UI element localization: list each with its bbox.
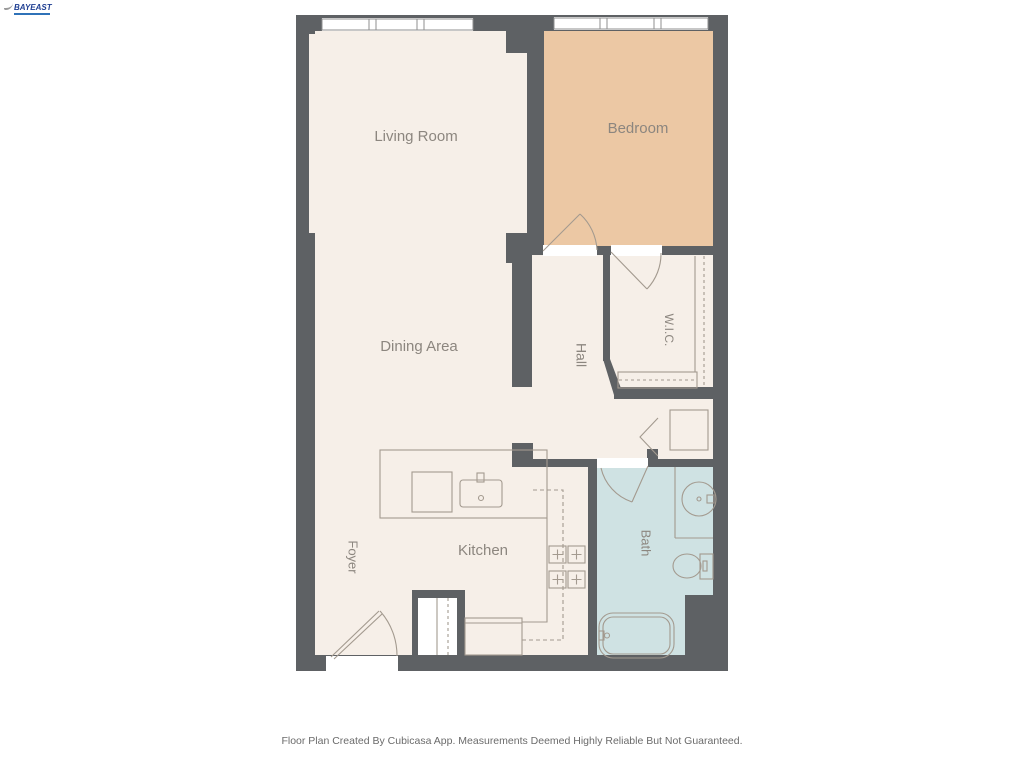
threshold-entry-door <box>326 656 398 671</box>
wall-bedroom-bottom-1 <box>527 246 543 255</box>
footer-disclaimer: Floor Plan Created By Cubicasa App. Meas… <box>0 735 1024 747</box>
wall-hall-left <box>512 255 532 387</box>
wall-outer-left-thick <box>296 233 315 671</box>
floor-plan-svg: Living Room Bedroom Dining Area Hall W.I… <box>296 15 728 671</box>
floor-plan: Living Room Bedroom Dining Area Hall W.I… <box>296 15 728 671</box>
label-hall: Hall <box>573 343 589 367</box>
logo-swoosh-icon <box>4 1 13 10</box>
label-foyer: Foyer <box>346 540 361 574</box>
living-room-window <box>322 18 473 31</box>
label-bedroom: Bedroom <box>608 120 669 137</box>
wall-outer-right <box>713 15 728 671</box>
bedroom-window <box>554 17 708 30</box>
wall-corner-top-left <box>296 15 315 34</box>
logo-text: BAYEAST <box>14 4 52 12</box>
label-dining-area: Dining Area <box>380 338 458 355</box>
label-living-room: Living Room <box>374 128 457 145</box>
wall-hall-wic-divider <box>603 255 610 361</box>
wall-bedroom-bottom-2 <box>597 246 611 255</box>
wall-kitchen-bath-divider <box>588 467 597 671</box>
wall-foyer-closet-right <box>457 590 465 656</box>
threshold-bedroom-door <box>543 245 597 256</box>
wall-bath-top-right <box>648 459 728 467</box>
bayeast-logo: BAYEAST <box>4 3 64 17</box>
wall-wic-bottom <box>614 387 713 399</box>
wall-living-bedroom-divider <box>527 31 544 246</box>
wall-bedroom-bottom-3 <box>662 246 713 255</box>
threshold-bath-door <box>597 458 648 468</box>
logo-underline <box>14 13 50 15</box>
label-wic: W.I.C. <box>662 314 676 347</box>
wall-foyer-closet-left <box>412 590 418 656</box>
wall-bath-top-left <box>512 459 597 467</box>
wall-bath-notch <box>685 595 728 671</box>
wall-bump-living-top-right <box>506 31 528 53</box>
label-bath: Bath <box>639 530 654 557</box>
threshold-wic-door <box>611 245 662 256</box>
label-kitchen: Kitchen <box>458 542 508 559</box>
floor-bedroom <box>544 31 713 246</box>
